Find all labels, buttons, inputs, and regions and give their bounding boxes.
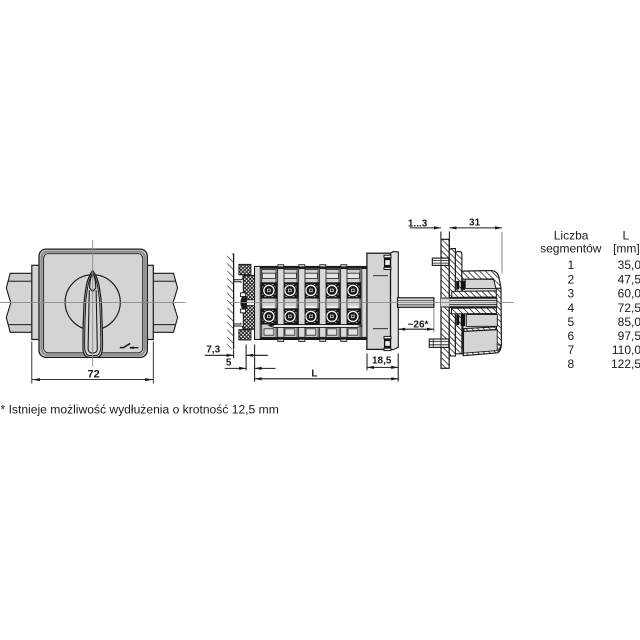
svg-text:110,0: 110,0 (612, 343, 640, 357)
svg-text:L: L (622, 228, 629, 242)
svg-text:72,5: 72,5 (618, 301, 640, 315)
svg-text:* Istnieje możliwość wydłużeni: * Istnieje możliwość wydłużenia o krotno… (1, 402, 279, 416)
svg-text:7: 7 (567, 343, 574, 357)
svg-text:31: 31 (469, 218, 481, 229)
svg-text:72: 72 (87, 368, 99, 380)
svg-text:2: 2 (567, 273, 574, 287)
svg-text:[mm]: [mm] (613, 242, 640, 256)
svg-text:7,3: 7,3 (206, 345, 220, 356)
svg-text:3: 3 (567, 286, 574, 300)
svg-text:L: L (311, 368, 317, 379)
svg-text:35,0: 35,0 (618, 258, 640, 272)
svg-text:segmentów: segmentów (540, 242, 602, 256)
svg-text:6: 6 (567, 329, 574, 343)
svg-text:60,0: 60,0 (618, 286, 640, 300)
svg-text:~26*: ~26* (408, 319, 429, 330)
svg-text:1: 1 (567, 258, 574, 272)
svg-text:85,0: 85,0 (618, 315, 640, 329)
svg-text:1...3: 1...3 (408, 219, 428, 230)
svg-text:Liczba: Liczba (554, 228, 589, 242)
svg-text:47,5: 47,5 (618, 273, 640, 287)
svg-text:18,5: 18,5 (372, 356, 392, 367)
svg-text:5: 5 (226, 358, 232, 369)
svg-text:97,5: 97,5 (618, 329, 640, 343)
svg-text:8: 8 (567, 357, 574, 371)
svg-text:4: 4 (567, 301, 574, 315)
svg-text:122,5: 122,5 (611, 357, 640, 371)
svg-text:5: 5 (567, 315, 574, 329)
